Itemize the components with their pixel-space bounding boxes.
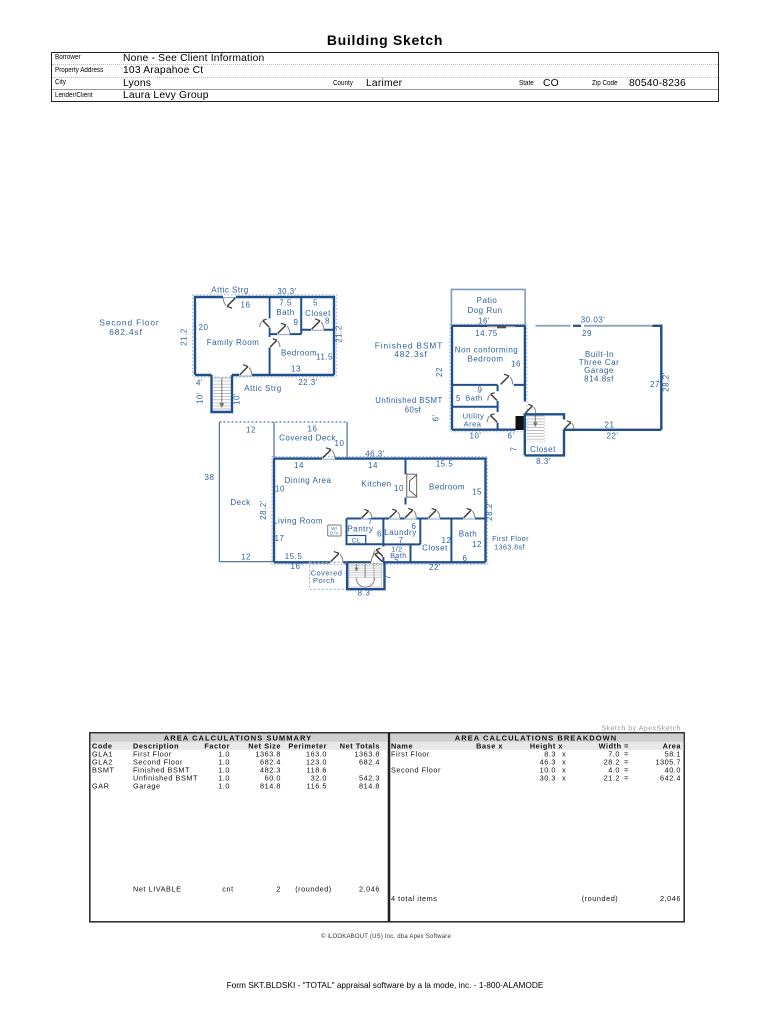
svg-text:28.2': 28.2' — [485, 501, 494, 521]
svg-text:11.5: 11.5 — [316, 353, 333, 362]
svg-text:Second Floor: Second Floor — [99, 318, 159, 328]
svg-text:814.8: 814.8 — [260, 781, 281, 790]
svg-text:21.2: 21.2 — [604, 774, 620, 783]
svg-text:6': 6' — [508, 432, 515, 441]
svg-text:Base x: Base x — [476, 741, 503, 750]
svg-text:Sketch by ApexSketch: Sketch by ApexSketch — [601, 726, 681, 733]
svg-text:10: 10 — [394, 484, 404, 493]
svg-text:Bath: Bath — [465, 394, 482, 403]
svg-text:Family Room: Family Room — [207, 338, 260, 347]
svg-text:29: 29 — [582, 329, 592, 338]
svg-text:16': 16' — [291, 562, 303, 571]
svg-text:60sf: 60sf — [405, 406, 422, 415]
svg-text:21: 21 — [605, 421, 615, 430]
svg-text:5: 5 — [313, 299, 318, 308]
svg-text:Closet: Closet — [422, 544, 448, 553]
svg-text:Attic Strg: Attic Strg — [244, 384, 281, 393]
svg-text:5: 5 — [456, 394, 461, 403]
svg-text:12: 12 — [241, 553, 251, 562]
svg-text:15: 15 — [472, 488, 482, 497]
svg-text:BSMT: BSMT — [92, 765, 114, 774]
svg-text:2: 2 — [276, 884, 281, 893]
svg-text:Closet: Closet — [530, 445, 556, 454]
svg-text:642.4: 642.4 — [660, 774, 681, 783]
svg-text:814.8sf: 814.8sf — [584, 375, 614, 384]
svg-text:28.2': 28.2' — [259, 500, 268, 520]
svg-text:Bath: Bath — [459, 530, 477, 539]
svg-text:12: 12 — [246, 426, 256, 435]
svg-text:4': 4' — [196, 379, 203, 388]
svg-text:4 total items: 4 total items — [391, 894, 438, 903]
svg-text:14.75: 14.75 — [475, 329, 498, 338]
svg-text:7: 7 — [510, 446, 519, 451]
svg-text:cnt: cnt — [222, 884, 233, 893]
svg-text:482.3sf: 482.3sf — [394, 349, 428, 359]
svg-text:10: 10 — [335, 439, 345, 448]
svg-text:27: 27 — [650, 380, 660, 389]
svg-text:6: 6 — [377, 530, 382, 539]
svg-text:22': 22' — [429, 563, 441, 572]
svg-text:46.3': 46.3' — [365, 450, 385, 459]
svg-text:30.03': 30.03' — [581, 316, 606, 325]
svg-text:(rounded): (rounded) — [582, 894, 619, 903]
svg-text:Garage: Garage — [133, 781, 161, 790]
svg-text:Deck: Deck — [230, 498, 251, 507]
svg-text:10': 10' — [196, 392, 205, 404]
svg-text:2,046: 2,046 — [359, 884, 380, 893]
svg-text:16': 16' — [478, 316, 490, 325]
svg-text:12: 12 — [472, 540, 482, 549]
svg-text:2,046: 2,046 — [660, 894, 681, 903]
svg-text:16: 16 — [308, 425, 318, 434]
svg-text:© iLOOKABOUT (US) Inc. dba Ape: © iLOOKABOUT (US) Inc. dba Apex Software — [321, 933, 451, 940]
svg-text:=: = — [624, 774, 629, 783]
svg-text:8: 8 — [325, 317, 330, 326]
svg-text:21.2: 21.2 — [180, 328, 189, 346]
svg-text:22: 22 — [435, 367, 444, 377]
svg-text:(rounded): (rounded) — [295, 884, 332, 893]
svg-text:Dining Area: Dining Area — [285, 476, 332, 485]
svg-text:8.3': 8.3' — [536, 457, 551, 466]
svg-text:D/V: D/V — [330, 531, 339, 536]
svg-text:7.5: 7.5 — [279, 299, 292, 308]
svg-text:682.4sf: 682.4sf — [109, 327, 143, 337]
svg-text:8.3': 8.3' — [358, 589, 373, 598]
svg-text:Attic Strg: Attic Strg — [211, 286, 248, 295]
svg-text:Covered Deck: Covered Deck — [279, 434, 336, 443]
svg-text:9: 9 — [294, 318, 299, 327]
svg-text:6: 6 — [463, 554, 468, 563]
svg-text:16: 16 — [241, 301, 251, 310]
svg-text:Dog Run: Dog Run — [467, 306, 502, 315]
svg-text:21.2: 21.2 — [335, 325, 344, 343]
svg-text:Bedroom: Bedroom — [281, 349, 317, 358]
svg-text:28.2': 28.2' — [662, 372, 671, 392]
svg-text:15.5: 15.5 — [436, 460, 454, 469]
svg-text:Area: Area — [464, 420, 482, 429]
svg-text:5: 5 — [394, 558, 398, 565]
svg-text:x: x — [562, 774, 566, 783]
svg-text:22.3': 22.3' — [298, 378, 318, 387]
svg-text:10: 10 — [275, 485, 285, 494]
svg-text:814.8: 814.8 — [359, 781, 380, 790]
svg-text:GAR: GAR — [92, 781, 109, 790]
svg-text:CL: CL — [352, 538, 361, 545]
svg-text:Patio: Patio — [477, 296, 498, 305]
svg-text:Kitchen: Kitchen — [361, 480, 391, 489]
svg-text:6': 6' — [432, 415, 441, 422]
svg-text:Second Floor: Second Floor — [391, 766, 441, 775]
svg-text:116.5: 116.5 — [307, 781, 327, 790]
svg-text:20: 20 — [199, 323, 209, 332]
svg-text:Bath: Bath — [276, 308, 294, 317]
svg-text:682.4: 682.4 — [359, 757, 380, 766]
svg-text:Pantry: Pantry — [347, 525, 373, 534]
svg-text:Bedroom: Bedroom — [429, 483, 465, 492]
svg-text:Net LIVABLE: Net LIVABLE — [133, 884, 182, 893]
svg-text:Living Room: Living Room — [273, 517, 323, 526]
svg-text:Unfinished BSMT: Unfinished BSMT — [375, 396, 442, 405]
svg-text:17: 17 — [275, 534, 285, 543]
svg-text:38: 38 — [205, 473, 215, 482]
svg-text:10': 10' — [233, 393, 242, 405]
svg-text:First Floor: First Floor — [391, 749, 430, 758]
svg-text:30.3: 30.3 — [540, 774, 556, 783]
svg-text:Non conforming: Non conforming — [455, 346, 518, 355]
svg-text:Bedroom: Bedroom — [468, 355, 504, 364]
svg-text:14: 14 — [368, 461, 378, 470]
svg-text:14: 14 — [294, 461, 304, 470]
svg-text:Porch: Porch — [313, 576, 335, 585]
svg-text:22': 22' — [607, 432, 619, 441]
svg-text:13: 13 — [291, 365, 301, 374]
svg-text:7: 7 — [399, 536, 404, 545]
svg-text:30.3': 30.3' — [277, 287, 297, 296]
svg-text:16: 16 — [511, 360, 521, 369]
svg-text:15.5: 15.5 — [285, 552, 303, 561]
svg-text:7: 7 — [384, 574, 393, 579]
svg-text:10': 10' — [470, 432, 482, 441]
svg-text:1363.8sf: 1363.8sf — [494, 543, 525, 552]
svg-text:1.0: 1.0 — [218, 781, 230, 790]
